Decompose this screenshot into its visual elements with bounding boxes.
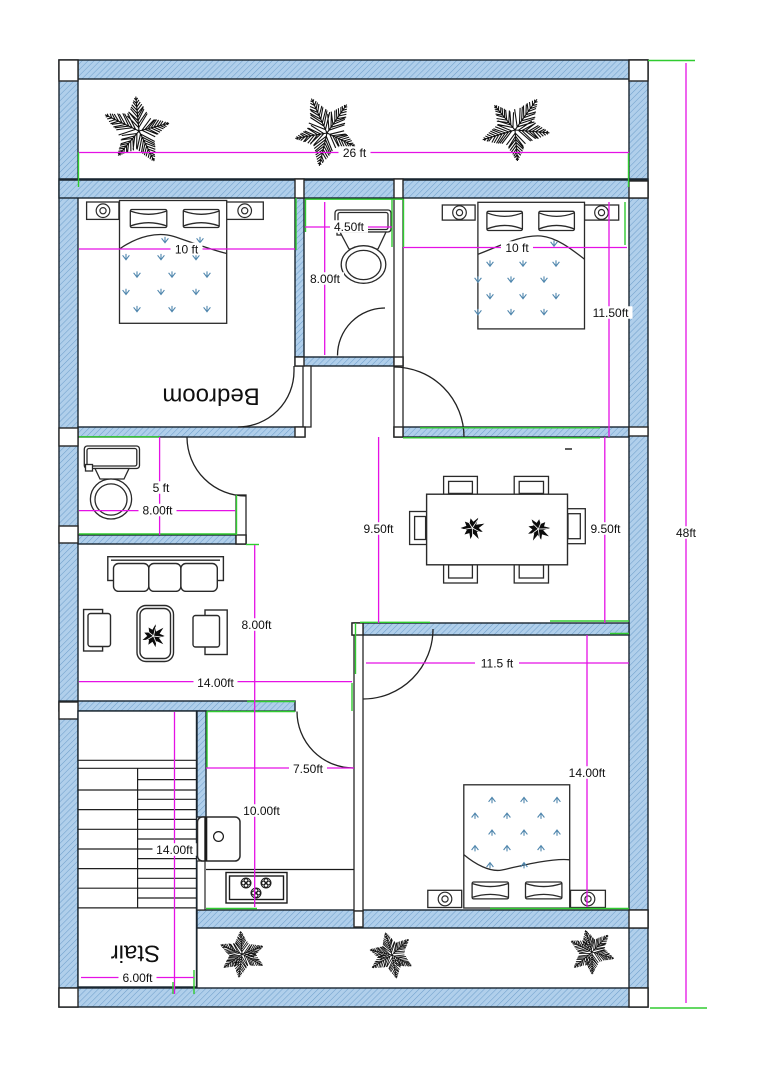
svg-text:48ft: 48ft — [676, 526, 697, 540]
svg-text:10 ft: 10 ft — [175, 243, 199, 257]
svg-text:6.00ft: 6.00ft — [122, 971, 153, 985]
svg-text:7.50ft: 7.50ft — [293, 762, 324, 776]
svg-text:14.00ft: 14.00ft — [156, 843, 193, 857]
svg-text:10.00ft: 10.00ft — [243, 804, 280, 818]
svg-text:4.50ft: 4.50ft — [334, 220, 365, 234]
svg-text:9.50ft: 9.50ft — [590, 522, 621, 536]
svg-text:10 ft: 10 ft — [505, 241, 529, 255]
svg-text:8.00ft: 8.00ft — [310, 272, 341, 286]
svg-text:14.00ft: 14.00ft — [569, 766, 606, 780]
svg-text:5 ft: 5 ft — [153, 481, 170, 495]
svg-text:11.50ft: 11.50ft — [593, 306, 629, 320]
svg-text:11.5 ft: 11.5 ft — [481, 657, 514, 671]
svg-text:14.00ft: 14.00ft — [197, 676, 234, 690]
svg-text:8.00ft: 8.00ft — [241, 618, 272, 632]
svg-text:26 ft: 26 ft — [343, 146, 367, 160]
svg-text:8.00ft: 8.00ft — [142, 504, 173, 518]
svg-text:9.50ft: 9.50ft — [363, 522, 394, 536]
svg-text:Bedroom: Bedroom — [162, 383, 259, 410]
svg-text:Stair: Stair — [111, 940, 160, 967]
